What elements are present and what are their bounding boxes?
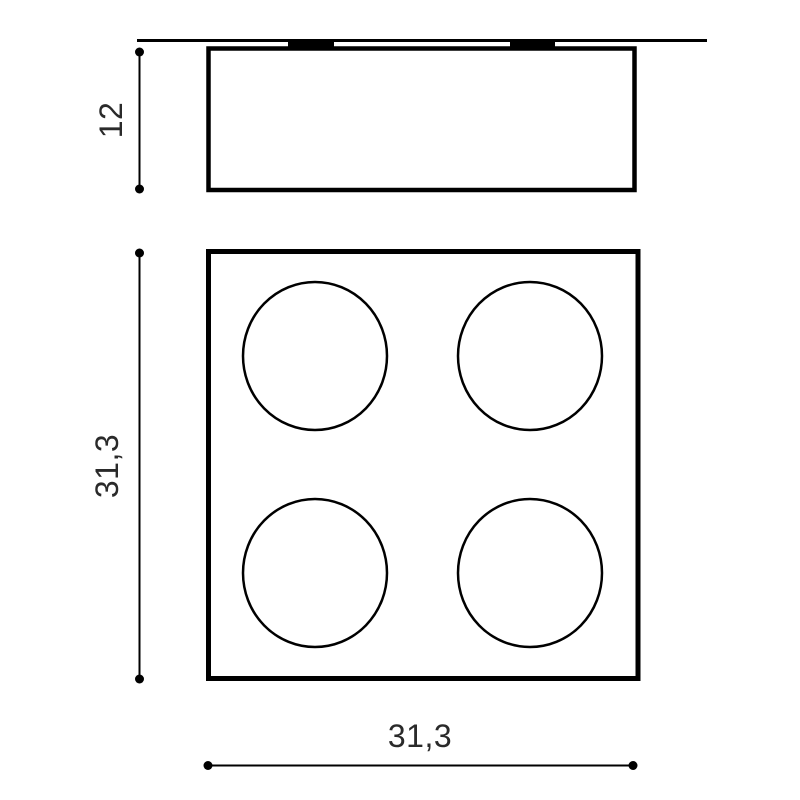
bottom-width-label: 31,3 bbox=[388, 718, 452, 754]
dimension-endpoint-dot bbox=[204, 761, 213, 770]
spot-circle-top-left bbox=[243, 282, 387, 430]
spot-circle-bottom-right bbox=[458, 499, 602, 647]
spot-circle-top-right bbox=[458, 282, 602, 430]
dimension-endpoint-dot bbox=[135, 675, 144, 684]
bottom-height-label: 31,3 bbox=[89, 434, 125, 498]
bottom-width-dimension: 31,3 bbox=[204, 718, 638, 770]
side-view: 12 bbox=[93, 39, 707, 194]
dimension-endpoint-dot bbox=[135, 48, 144, 57]
side-height-dimension: 12 bbox=[93, 48, 144, 194]
dimension-endpoint-dot bbox=[135, 249, 144, 258]
spot-circle-bottom-left bbox=[243, 499, 387, 647]
bottom-height-dimension: 31,3 bbox=[89, 249, 144, 684]
dimension-endpoint-dot bbox=[629, 761, 638, 770]
bottom-view: 31,3 31,3 bbox=[89, 249, 638, 771]
side-height-label: 12 bbox=[93, 102, 129, 139]
dimension-endpoint-dot bbox=[135, 185, 144, 194]
drawing-canvas: 12 31,3 31,3 bbox=[0, 0, 800, 800]
mount-tab-right bbox=[510, 39, 555, 50]
side-view-body bbox=[209, 49, 635, 191]
dimension-drawing: 12 31,3 31,3 bbox=[0, 0, 800, 800]
mount-tab-left bbox=[288, 39, 334, 50]
